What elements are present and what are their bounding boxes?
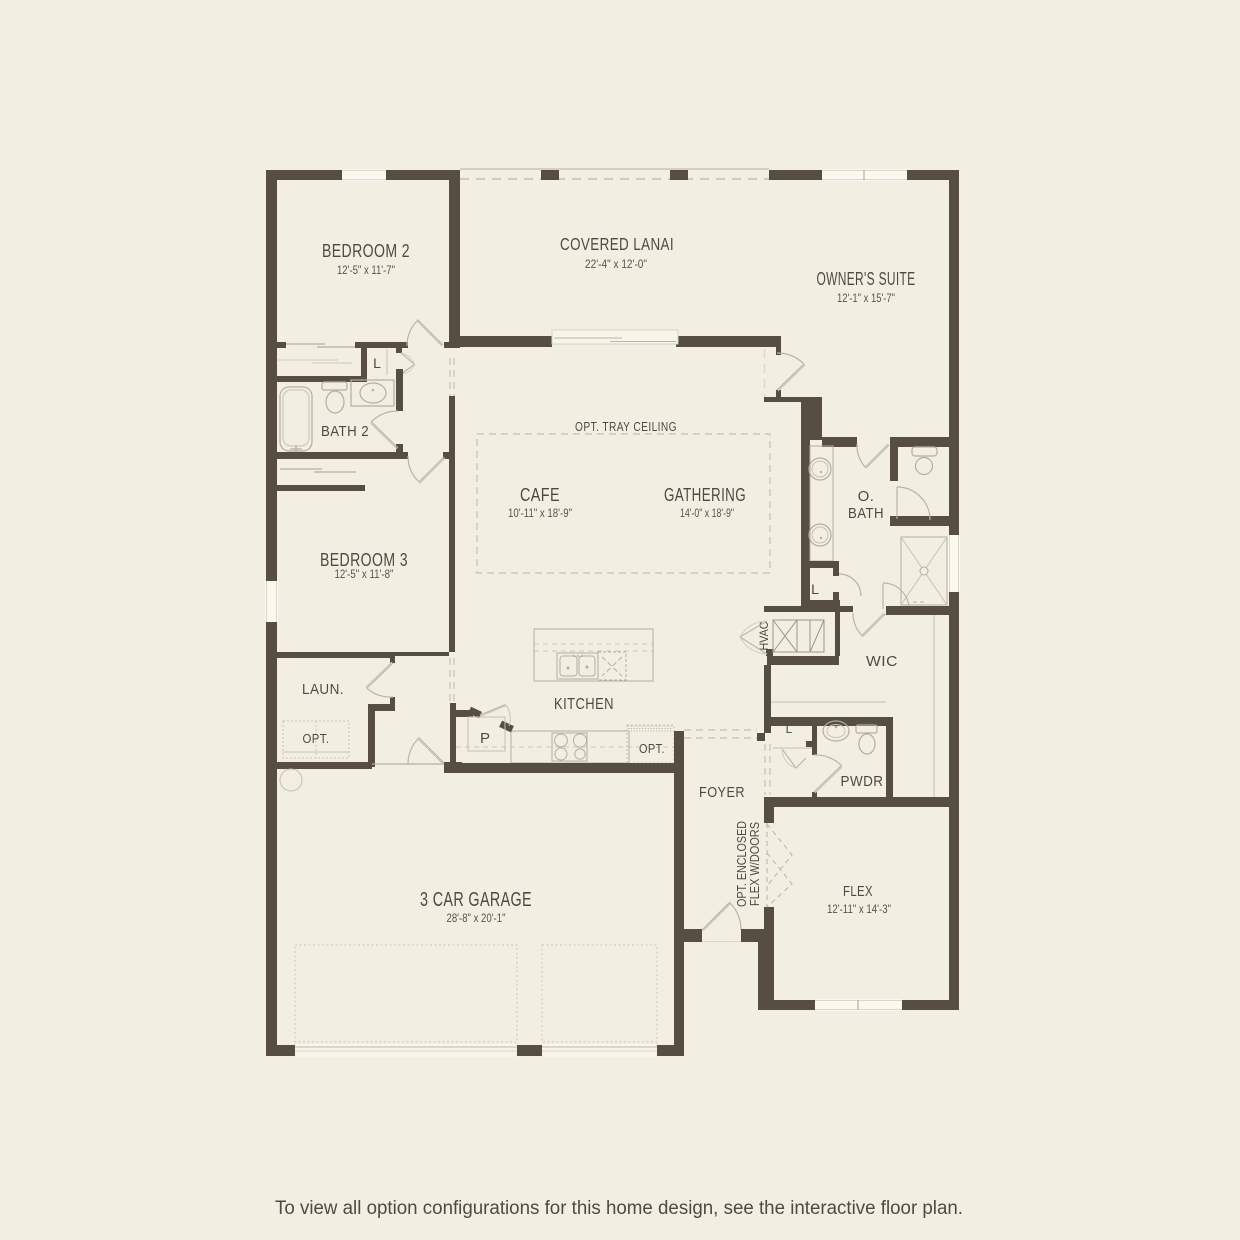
svg-text:OPT.: OPT.	[303, 731, 330, 746]
svg-text:12'-5" x 11'-7": 12'-5" x 11'-7"	[337, 263, 395, 277]
svg-text:28'-8" x 20'-1": 28'-8" x 20'-1"	[447, 911, 506, 925]
svg-text:BATH: BATH	[848, 505, 884, 522]
svg-text:O.: O.	[858, 488, 875, 505]
svg-text:12'-1" x 15'-7": 12'-1" x 15'-7"	[837, 291, 895, 305]
svg-text:GATHERING: GATHERING	[664, 485, 746, 505]
svg-text:12'-11" x 14'-3": 12'-11" x 14'-3"	[827, 902, 891, 916]
svg-text:14'-0" x 18'-9": 14'-0" x 18'-9"	[680, 506, 734, 520]
svg-text:BATH 2: BATH 2	[321, 423, 369, 440]
svg-text:L: L	[811, 581, 819, 597]
svg-text:10'-11" x 18'-9": 10'-11" x 18'-9"	[508, 506, 572, 520]
svg-text:KITCHEN: KITCHEN	[554, 696, 614, 713]
svg-text:OPT. ENCLOSED: OPT. ENCLOSED	[735, 821, 749, 907]
svg-text:3 CAR GARAGE: 3 CAR GARAGE	[420, 889, 532, 911]
svg-text:OPT. TRAY CEILING: OPT. TRAY CEILING	[575, 420, 677, 434]
svg-text:22'-4" x 12'-0": 22'-4" x 12'-0"	[585, 257, 647, 271]
svg-text:PWDR: PWDR	[841, 773, 884, 790]
svg-text:L: L	[786, 722, 793, 736]
svg-text:LAUN.: LAUN.	[302, 681, 344, 698]
svg-text:FOYER: FOYER	[699, 784, 745, 801]
svg-text:OWNER'S SUITE: OWNER'S SUITE	[817, 269, 916, 289]
svg-text:12'-5" x 11'-8": 12'-5" x 11'-8"	[335, 567, 394, 581]
svg-text:COVERED LANAI: COVERED LANAI	[560, 234, 674, 254]
svg-text:To view all option configurati: To view all option configurations for th…	[275, 1198, 963, 1219]
svg-text:WIC: WIC	[866, 653, 898, 670]
svg-text:FLEX W/DOORS: FLEX W/DOORS	[748, 822, 762, 906]
svg-text:FLEX: FLEX	[843, 884, 873, 900]
svg-text:BEDROOM 2: BEDROOM 2	[322, 241, 410, 261]
svg-text:OPT.: OPT.	[639, 741, 665, 756]
svg-text:CAFE: CAFE	[520, 485, 560, 505]
svg-text:P: P	[480, 730, 490, 747]
svg-text:L: L	[373, 355, 381, 371]
